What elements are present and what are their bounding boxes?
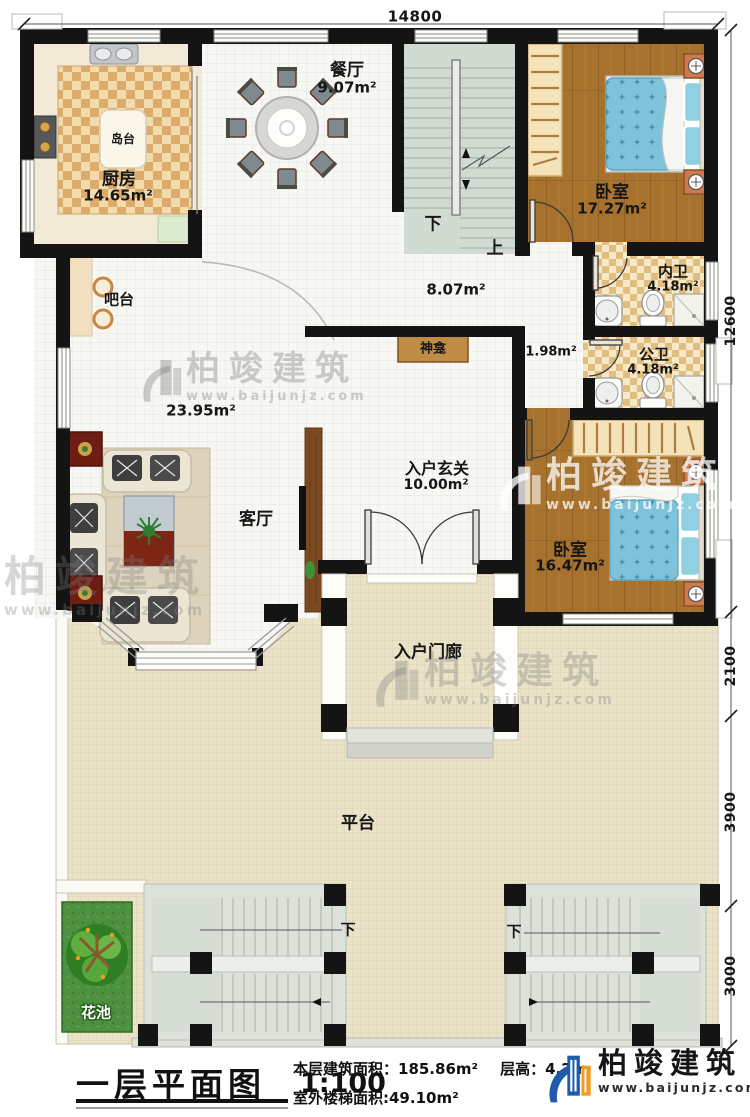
column [190,1024,212,1046]
stair-up-label: 上 [487,241,504,258]
column [504,952,526,974]
porch-column [493,704,519,732]
dimension-right-3000: 3000 [724,956,738,997]
company-name: 柏竣建筑 [598,1048,750,1078]
dimension-right-12600: 12600 [724,295,738,346]
column [700,1024,720,1046]
bar-stool [94,310,112,328]
bed-icon [606,76,705,172]
column [324,884,346,906]
dimension-right-2100: 2100 [724,646,738,687]
column [504,1024,526,1046]
window [58,348,70,428]
room-area-living: 23.95m² [166,404,236,419]
outdoor-stair-left-down-label: 下 [340,923,355,938]
side-table [68,432,102,466]
area-stair-hall: 8.07m² [426,283,485,298]
window [88,30,160,42]
wardrobe [528,44,562,176]
tree-icon [66,924,128,986]
floor-plan-page: 14800 12600 2100 3900 3000 餐厅 9.07m² 厨房 … [0,0,750,1117]
label-platform: 平台 [341,816,375,833]
column [324,952,346,974]
bed-icon [610,486,704,580]
company-logo: 柏竣建筑 www.baijunjz.com [544,1048,750,1110]
shower-icon [674,294,704,326]
outdoor-stair-right-down-label: 下 [506,925,521,940]
room-area-foyer: 10.00m² [403,478,468,492]
label-flower-bed: 花池 [81,1006,111,1021]
room-label-foyer: 入户玄关 [405,461,469,477]
column [190,952,212,974]
room-area-dining: 9.07m² [317,81,376,96]
room-area-kitchen: 14.65m² [83,189,153,204]
label-shrine: 神龛 [420,343,446,356]
porch-step [347,743,493,758]
title-underline [76,1099,288,1103]
coffee-table [124,496,174,566]
room-area-bedroom1: 17.27m² [577,202,647,217]
tv-icon [299,486,306,550]
stair-rail [452,60,460,215]
shower-icon [674,376,704,408]
room-label-dining: 餐厅 [330,63,364,80]
toilet-icon [640,290,666,326]
room-area-public-bath: 4.18m² [627,364,678,377]
window [214,30,328,42]
outdoor-stair-area-text: 室外楼梯面积:49.10m² [293,1087,459,1108]
room-label-public-bath: 公卫 [639,348,669,363]
room-area-ensuite: 4.18m² [647,281,698,294]
floor-area-text: 本层建筑面积：185.86m² [293,1060,478,1078]
title-underline-thin [76,1107,288,1109]
floor-plan-drawing [0,0,750,1117]
label-bar: 吧台 [104,293,134,308]
porch-column [493,598,519,626]
column [138,1024,158,1046]
window [558,30,638,42]
column [324,1024,346,1046]
room-label-living: 客厅 [239,512,273,529]
label-kitchen-island: 岛台 [111,133,135,145]
outdoor-stair-left [138,884,346,1046]
window [415,30,487,42]
window [706,262,718,320]
column [700,884,720,906]
porch-column [321,598,347,626]
dimension-top-width: 14800 [388,10,443,25]
column [632,952,654,974]
column [632,1024,654,1046]
company-website: www.baijunjz.com [598,1080,750,1095]
outdoor-stair-right [504,884,720,1046]
dimension-right-3900: 3900 [724,792,738,833]
porch-step [347,728,493,743]
window [22,160,34,232]
window [563,614,673,624]
area-corridor: 1.98m² [525,346,576,359]
stair-down-label: 下 [425,217,442,234]
label-porch: 入户门廊 [394,645,462,662]
room-area-bedroom2: 16.47m² [535,559,605,574]
porch-column [321,704,347,732]
wardrobe [573,420,704,456]
plant-icon [305,561,315,579]
column [504,884,526,906]
kitchen-mat [158,216,188,242]
room-label-ensuite: 内卫 [658,265,688,280]
ensuite-bath-fixtures [592,290,704,326]
company-logo-icon [544,1048,594,1110]
